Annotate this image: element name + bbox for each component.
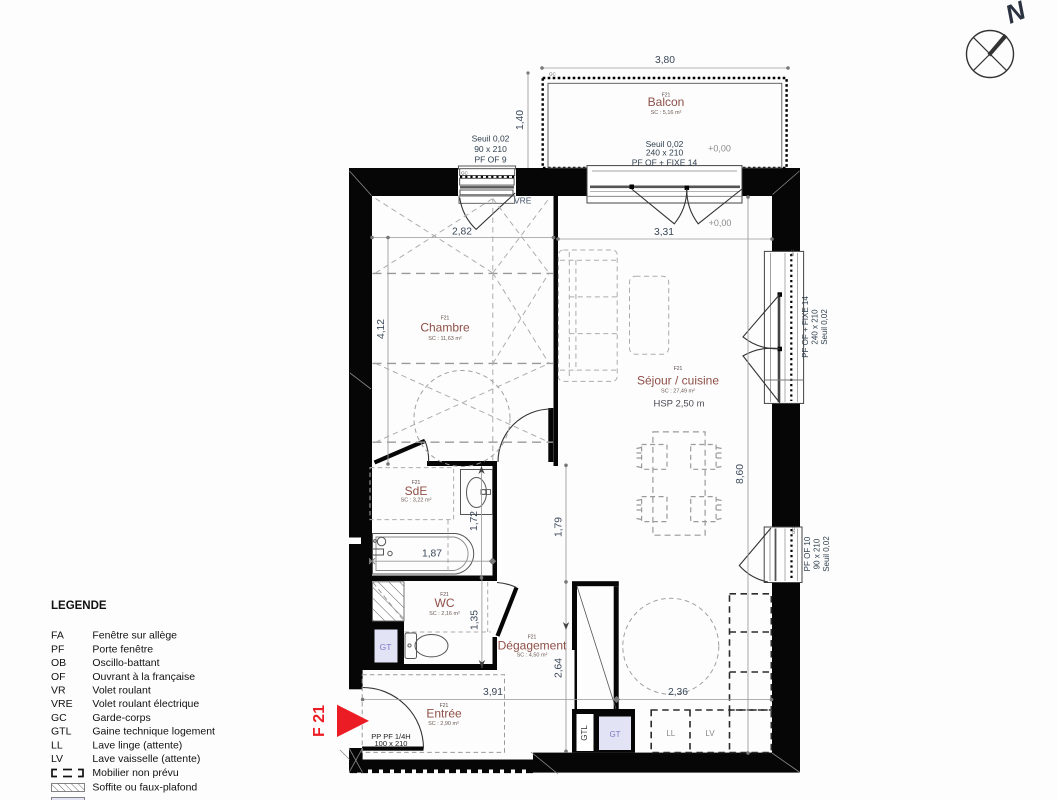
svg-text:SC : 11,63 m²: SC : 11,63 m² [428, 336, 462, 342]
svg-text:Seuil 0,02: Seuil 0,02 [822, 536, 831, 572]
svg-text:SdE: SdE [405, 484, 428, 498]
svg-text:GC: GC [461, 171, 469, 176]
svg-text:Lave linge (attente): Lave linge (attente) [92, 739, 182, 751]
svg-text:Balcon: Balcon [648, 95, 685, 109]
svg-text:3,91: 3,91 [483, 687, 503, 698]
svg-text:Fenêtre sur allège: Fenêtre sur allège [92, 630, 177, 642]
svg-text:F 21: F 21 [311, 705, 328, 737]
svg-text:LEGENDE: LEGENDE [51, 600, 107, 612]
svg-text:Dégagement: Dégagement [498, 639, 567, 653]
svg-text:+0,00: +0,00 [708, 144, 731, 154]
svg-text:GT: GT [380, 642, 392, 652]
svg-text:VRE: VRE [514, 196, 532, 206]
svg-text:OB: OB [51, 657, 66, 669]
svg-text:Soffite ou faux-plafond: Soffite ou faux-plafond [92, 781, 197, 793]
svg-text:VRE: VRE [51, 698, 73, 710]
svg-text:8,60: 8,60 [735, 464, 746, 484]
svg-text:VR: VR [51, 685, 66, 697]
svg-text:LV: LV [705, 729, 715, 738]
svg-text:GC: GC [51, 712, 67, 724]
svg-text:SC : 5,16 m²: SC : 5,16 m² [651, 110, 682, 116]
svg-text:SC : 3,22 m²: SC : 3,22 m² [401, 498, 432, 504]
svg-text:1,72: 1,72 [469, 511, 480, 531]
svg-text:240 x 210: 240 x 210 [811, 309, 820, 345]
svg-text:Ouvrant à la française: Ouvrant à la française [92, 671, 195, 683]
svg-text:SC : 2,16 m²: SC : 2,16 m² [429, 611, 460, 617]
svg-text:GC: GC [549, 72, 557, 77]
svg-text:GTL: GTL [51, 726, 72, 738]
svg-text:1,35: 1,35 [470, 610, 481, 630]
svg-text:4,12: 4,12 [376, 319, 387, 339]
svg-text:Entrée: Entrée [426, 707, 462, 721]
svg-text:Volet roulant: Volet roulant [92, 685, 150, 697]
svg-text:240 x 210: 240 x 210 [646, 148, 684, 158]
svg-text:Oscillo-battant: Oscillo-battant [92, 657, 159, 669]
svg-text:+0,00: +0,00 [709, 218, 732, 228]
svg-text:1,40: 1,40 [515, 110, 526, 130]
svg-text:Séjour / cuisine: Séjour / cuisine [637, 374, 719, 388]
svg-text:Garde-corps: Garde-corps [92, 712, 150, 724]
svg-text:FA: FA [51, 630, 64, 642]
svg-text:WC: WC [435, 596, 455, 610]
svg-text:PF OF 10: PF OF 10 [803, 536, 812, 571]
svg-text:2,36: 2,36 [668, 687, 688, 698]
svg-text:SC : 27,49 m²: SC : 27,49 m² [661, 389, 695, 395]
svg-text:SC : 4,50 m²: SC : 4,50 m² [517, 653, 548, 659]
svg-text:Mobilier non prévu: Mobilier non prévu [92, 767, 179, 779]
svg-text:Seuil 0,02: Seuil 0,02 [472, 134, 510, 144]
svg-text:1,79: 1,79 [554, 517, 565, 537]
svg-text:Porte fenêtre: Porte fenêtre [92, 643, 153, 655]
svg-text:2,82: 2,82 [452, 227, 472, 238]
svg-text:Chambre: Chambre [420, 321, 470, 335]
svg-text:3,80: 3,80 [655, 55, 675, 66]
svg-text:3,31: 3,31 [654, 227, 674, 238]
svg-text:LL: LL [666, 729, 675, 738]
svg-text:GC: GC [791, 526, 796, 534]
svg-text:OF: OF [51, 671, 66, 683]
svg-text:Lave vaisselle (attente): Lave vaisselle (attente) [92, 753, 200, 765]
svg-text:Volet roulant électrique: Volet roulant électrique [92, 698, 199, 710]
svg-text:LV: LV [51, 753, 63, 765]
svg-text:90 x 210: 90 x 210 [813, 538, 822, 569]
svg-text:LL: LL [51, 739, 63, 751]
svg-text:Seuil 0,02: Seuil 0,02 [820, 309, 829, 345]
svg-text:SC : 2,90 m²: SC : 2,90 m² [428, 721, 459, 727]
svg-text:Gaine technique logement: Gaine technique logement [92, 726, 215, 738]
svg-text:1,87: 1,87 [422, 549, 442, 560]
svg-text:GC: GC [790, 248, 795, 256]
svg-text:HSP 2,50 m: HSP 2,50 m [653, 399, 704, 410]
svg-text:100 x 210: 100 x 210 [375, 739, 408, 748]
svg-text:90 x 210: 90 x 210 [474, 144, 507, 154]
svg-text:2,64: 2,64 [554, 658, 565, 678]
svg-text:F21: F21 [674, 366, 683, 372]
svg-text:GTL: GTL [580, 725, 589, 741]
svg-text:GT: GT [609, 730, 620, 739]
svg-text:PF OF 9: PF OF 9 [474, 155, 506, 165]
svg-text:PF: PF [51, 643, 64, 655]
svg-text:PF OF + FIXE 14: PF OF + FIXE 14 [801, 296, 810, 358]
svg-text:PF OF + FIXE 14: PF OF + FIXE 14 [632, 158, 698, 168]
